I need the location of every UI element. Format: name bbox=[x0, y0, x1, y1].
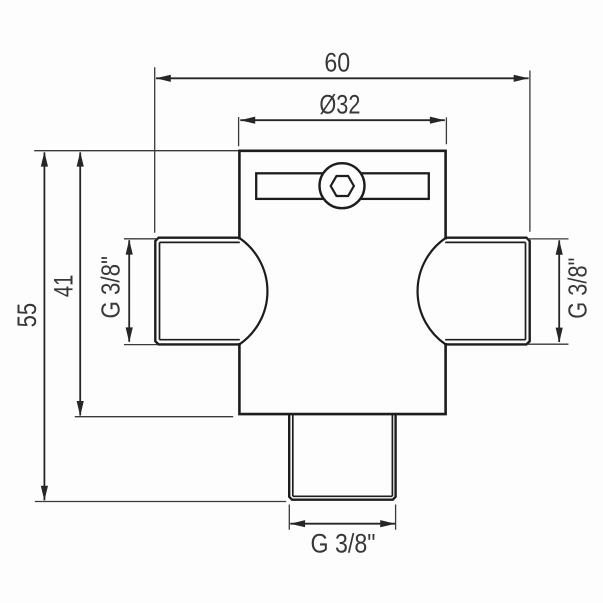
svg-text:Ø32: Ø32 bbox=[319, 90, 360, 120]
svg-text:G 3/8": G 3/8" bbox=[562, 258, 592, 319]
svg-text:G 3/8": G 3/8" bbox=[95, 256, 125, 319]
svg-text:60: 60 bbox=[324, 47, 350, 77]
svg-text:G 3/8": G 3/8" bbox=[311, 528, 376, 558]
svg-text:41: 41 bbox=[48, 275, 78, 298]
svg-text:55: 55 bbox=[12, 303, 42, 328]
